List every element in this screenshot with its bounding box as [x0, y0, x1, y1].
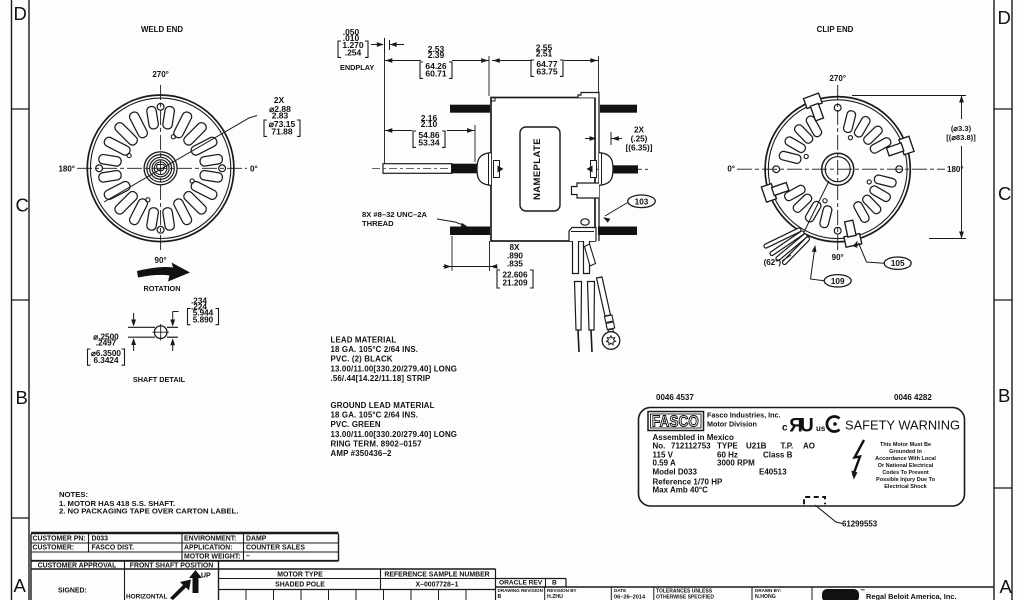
svg-text:.254: .254	[345, 47, 362, 57]
svg-text:NOTES:: NOTES:	[59, 490, 88, 499]
svg-text:2.39: 2.39	[428, 50, 445, 60]
svg-text:ROTATION: ROTATION	[143, 284, 180, 293]
svg-text:CUSTOMER APPROVAL: CUSTOMER APPROVAL	[38, 562, 117, 569]
svg-text:2. NO PACKAGING TAPE OVER: 2. NO PACKAGING TAPE OVER CARTON LABEL.	[59, 507, 238, 516]
svg-text:CUSTOMER:: CUSTOMER:	[33, 545, 75, 552]
svg-text:.56/.44[14.22/11.18] STRIP: .56/.44[14.22/11.18] STRIP	[331, 374, 431, 383]
svg-text:APPLICATION:: APPLICATION:	[184, 545, 233, 552]
svg-text:C: C	[998, 183, 1011, 204]
svg-text:105: 105	[891, 259, 905, 268]
svg-text:AO: AO	[803, 442, 815, 451]
svg-text:0046 4537: 0046 4537	[656, 393, 694, 402]
svg-text:FRONT SHAFT POSITION: FRONT SHAFT POSITION	[130, 562, 213, 569]
svg-text:No.: No.	[653, 442, 666, 451]
svg-text:B: B	[998, 385, 1010, 406]
svg-text:0046 4282: 0046 4282	[894, 393, 932, 402]
svg-text:B: B	[498, 594, 502, 600]
svg-text:90°: 90°	[832, 253, 844, 262]
svg-text:Possible Injury Due To: Possible Injury Due To	[876, 477, 936, 483]
svg-text:–: –	[246, 553, 250, 560]
svg-text:AMP #350436–2: AMP #350436–2	[331, 449, 392, 458]
svg-text:N.HONG: N.HONG	[755, 594, 776, 600]
svg-text:D033: D033	[92, 536, 109, 543]
svg-text:Grounded In: Grounded In	[889, 449, 922, 455]
svg-text:REFERENCE SAMPLE NUMBER: REFERENCE SAMPLE NUMBER	[384, 572, 489, 579]
svg-text:3000 RPM: 3000 RPM	[717, 459, 755, 468]
svg-text:109: 109	[831, 277, 845, 286]
svg-text:™: ™	[860, 589, 865, 595]
svg-text:X–0007728–1: X–0007728–1	[416, 582, 459, 589]
svg-text:Model D033: Model D033	[653, 468, 698, 477]
svg-text:DRAWN BY:: DRAWN BY:	[755, 588, 782, 593]
svg-text:COUNTER SALES: COUNTER SALES	[246, 545, 305, 552]
svg-text:(⌀3.3): (⌀3.3)	[951, 124, 972, 133]
svg-text:90°: 90°	[155, 256, 167, 265]
svg-text:53.34: 53.34	[418, 137, 440, 147]
svg-text:H.ZHU: H.ZHU	[547, 594, 563, 600]
svg-text:D: D	[998, 7, 1011, 28]
svg-text:C: C	[16, 195, 29, 216]
svg-text:PVC. (2) BLACK: PVC. (2) BLACK	[331, 355, 393, 364]
svg-text:61299553: 61299553	[842, 520, 878, 529]
svg-text:Regal Beloit America, Inc.: Regal Beloit America, Inc.	[866, 592, 957, 600]
svg-text:SHAFT DETAIL: SHAFT DETAIL	[133, 375, 186, 384]
svg-text:MOTOR TYPE: MOTOR TYPE	[277, 572, 323, 579]
svg-text:18 GA. 105°C 2/64 INS.: 18 GA. 105°C 2/64 INS.	[331, 411, 419, 420]
svg-text:MOTOR WEIGHT:: MOTOR WEIGHT:	[184, 554, 241, 561]
svg-text:Codes To Prevent: Codes To Prevent	[882, 470, 929, 476]
svg-text:REVISION BY: REVISION BY	[547, 588, 577, 593]
svg-text:A: A	[1000, 576, 1013, 597]
svg-text:8X #8–32 UNC–2A: 8X #8–32 UNC–2A	[362, 210, 428, 219]
svg-text:UP: UP	[201, 573, 211, 580]
svg-text:RING TERM. 8902–0157: RING TERM. 8902–0157	[331, 439, 423, 448]
svg-text:SIGNED:: SIGNED:	[58, 588, 87, 595]
svg-text:18 GA. 105°C 2/64 INS.: 18 GA. 105°C 2/64 INS.	[331, 345, 419, 354]
svg-text:TYPE: TYPE	[717, 442, 739, 451]
svg-text:.2497: .2497	[96, 339, 117, 348]
svg-text:PVC. GREEN: PVC. GREEN	[331, 420, 381, 429]
svg-text:DRAWING REVISION: DRAWING REVISION	[498, 588, 544, 593]
svg-text:103: 103	[635, 197, 649, 206]
svg-text:2.51: 2.51	[536, 49, 553, 59]
svg-text:[(6.35)]: [(6.35)]	[626, 144, 653, 153]
svg-text:NAMEPLATE: NAMEPLATE	[532, 138, 543, 200]
svg-text:GROUND LEAD MATERIAL: GROUND LEAD MATERIAL	[331, 401, 435, 410]
svg-text:OTHERWISE SPECIFIED: OTHERWISE SPECIFIED	[656, 595, 714, 600]
svg-text:2.10: 2.10	[421, 119, 438, 129]
svg-text:2X: 2X	[634, 126, 645, 135]
svg-text:HORIZONTAL: HORIZONTAL	[126, 594, 168, 600]
svg-text:U21B: U21B	[746, 442, 767, 451]
svg-text:A: A	[14, 575, 27, 596]
svg-text:0°: 0°	[250, 165, 258, 174]
svg-text:THREAD: THREAD	[362, 219, 394, 228]
svg-text:6.3424: 6.3424	[93, 356, 118, 365]
svg-text:U: U	[800, 416, 814, 437]
svg-text:c: c	[782, 423, 788, 434]
svg-text:WELD END: WELD END	[141, 25, 183, 34]
svg-text:This Motor Must Be: This Motor Must Be	[880, 442, 931, 448]
svg-text:us: us	[816, 424, 826, 433]
svg-text:71.88: 71.88	[271, 126, 293, 136]
svg-text:FASCO DIST.: FASCO DIST.	[92, 545, 135, 552]
svg-text:Class B: Class B	[763, 451, 793, 460]
svg-text:[(⌀83.8)]: [(⌀83.8)]	[946, 133, 976, 142]
svg-text:13.00/11.00[330.20/279.40] LO: 13.00/11.00[330.20/279.40] LONG	[331, 430, 458, 439]
svg-text:FASCO: FASCO	[652, 414, 699, 431]
svg-text:13.00/11.00[330.20/279.40] LO: 13.00/11.00[330.20/279.40] LONG	[331, 364, 458, 373]
svg-text:Electrical Shock: Electrical Shock	[884, 484, 927, 490]
svg-text:D: D	[14, 3, 27, 24]
svg-text:ORACLE REV: ORACLE REV	[499, 580, 543, 587]
svg-text:60.71: 60.71	[425, 68, 447, 78]
svg-text:CLIP END: CLIP END	[817, 25, 854, 34]
svg-text:180°: 180°	[58, 165, 75, 174]
svg-text:LEAD MATERIAL: LEAD MATERIAL	[331, 336, 397, 345]
svg-text:63.75: 63.75	[536, 66, 558, 76]
svg-text:(.25): (.25)	[631, 135, 648, 144]
svg-text:270°: 270°	[829, 74, 846, 83]
svg-text:712112753: 712112753	[671, 442, 711, 451]
svg-text:.835: .835	[507, 260, 523, 269]
svg-text:Motor Division: Motor Division	[707, 420, 757, 429]
svg-text:B: B	[552, 580, 557, 587]
svg-text:06–26–2014: 06–26–2014	[614, 595, 646, 600]
svg-text:0°: 0°	[727, 165, 735, 174]
svg-text:0.59 A: 0.59 A	[653, 459, 676, 468]
svg-text:Accordance With Local: Accordance With Local	[875, 456, 936, 462]
svg-text:Or National Electrical: Or National Electrical	[878, 463, 934, 469]
svg-text:ENDPLAY: ENDPLAY	[340, 63, 374, 72]
svg-text:E40513: E40513	[759, 468, 787, 477]
svg-text:SAFETY WARNING: SAFETY WARNING	[845, 418, 960, 433]
svg-text:SHADED POLE: SHADED POLE	[275, 582, 325, 589]
svg-text:B: B	[16, 387, 28, 408]
svg-text:ENVIRONMENT:: ENVIRONMENT:	[184, 536, 236, 543]
svg-text:5.890: 5.890	[193, 316, 214, 325]
svg-text:21.209: 21.209	[502, 279, 527, 288]
svg-text:Fasco Industries, Inc.: Fasco Industries, Inc.	[707, 411, 781, 420]
svg-text:DATE: DATE	[614, 588, 626, 593]
svg-text:DAMP: DAMP	[246, 536, 267, 543]
svg-text:CUSTOMER PN:: CUSTOMER PN:	[33, 536, 86, 543]
svg-text:Max Amb 40°C: Max Amb 40°C	[653, 486, 709, 495]
svg-text:(62°): (62°)	[764, 258, 782, 267]
svg-text:T.P.: T.P.	[781, 442, 794, 451]
svg-text:270°: 270°	[152, 70, 169, 79]
